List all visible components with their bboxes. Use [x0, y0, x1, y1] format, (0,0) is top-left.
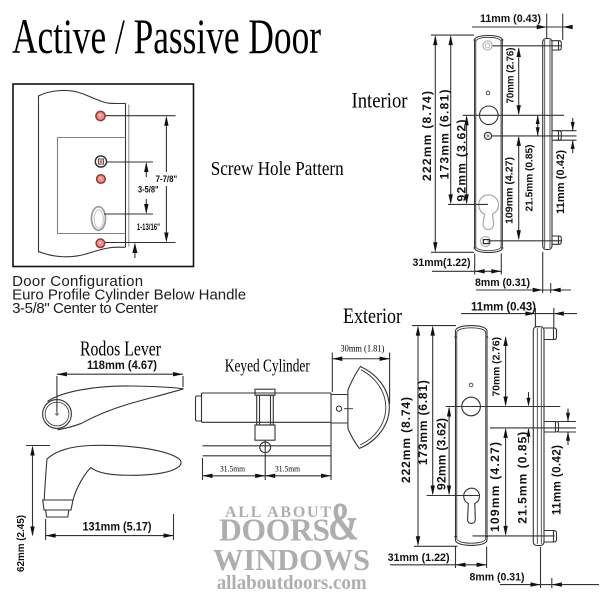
svg-text:31.5mm: 31.5mm — [275, 464, 300, 474]
svg-text:222mm (8.74): 222mm (8.74) — [420, 91, 434, 181]
svg-text:173mm (6.81): 173mm (6.81) — [416, 380, 430, 465]
svg-text:8mm (0.31): 8mm (0.31) — [470, 572, 525, 584]
svg-text:Exterior: Exterior — [343, 303, 403, 328]
svg-text:222mm (8.74): 222mm (8.74) — [399, 397, 413, 483]
svg-text:7-7/8": 7-7/8" — [156, 174, 178, 184]
svg-text:1-13/16": 1-13/16" — [137, 222, 160, 232]
svg-text:30mm (1.81): 30mm (1.81) — [340, 344, 384, 355]
svg-text:8mm (0.31): 8mm (0.31) — [475, 277, 530, 289]
svg-text:31.5mm: 31.5mm — [220, 464, 245, 474]
svg-text:Rodos Lever: Rodos Lever — [80, 336, 161, 360]
svg-text:109mm (4.27): 109mm (4.27) — [488, 442, 502, 532]
svg-text:3-5/8": 3-5/8" — [138, 185, 159, 195]
svg-text:21.5mm (0.85): 21.5mm (0.85) — [516, 432, 530, 524]
svg-text:92mm (3.62): 92mm (3.62) — [435, 418, 449, 490]
svg-text:3-5/8" Center to Center: 3-5/8" Center to Center — [12, 300, 158, 317]
svg-text:Active / Passive Door: Active / Passive Door — [12, 8, 321, 64]
svg-text:allaboutdoors.com: allaboutdoors.com — [217, 572, 367, 594]
svg-text:Interior: Interior — [352, 88, 409, 113]
svg-text:62mm (2.45): 62mm (2.45) — [15, 515, 27, 572]
svg-text:21.5mm (0.85): 21.5mm (0.85) — [523, 145, 535, 212]
svg-text:11mm (0.43): 11mm (0.43) — [471, 302, 536, 314]
svg-text:70mm (2.76): 70mm (2.76) — [491, 337, 503, 397]
svg-text:11mm (0.42): 11mm (0.42) — [551, 445, 563, 515]
svg-text:173mm (6.81): 173mm (6.81) — [437, 90, 451, 180]
svg-text:109mm (4.27): 109mm (4.27) — [504, 157, 516, 224]
svg-text:Keyed Cylinder: Keyed Cylinder — [225, 356, 310, 376]
svg-text:92mm (3.62): 92mm (3.62) — [454, 120, 468, 202]
svg-text:31mm (1.22): 31mm (1.22) — [388, 552, 450, 564]
svg-text:131mm (5.17): 131mm (5.17) — [83, 522, 152, 534]
svg-text:11mm (0.42): 11mm (0.42) — [555, 150, 567, 214]
svg-text:70mm (2.76): 70mm (2.76) — [505, 48, 516, 104]
svg-text:31mm(1.22): 31mm(1.22) — [413, 257, 471, 269]
svg-text:118mm (4.67): 118mm (4.67) — [87, 360, 157, 372]
svg-text:11mm (0.43): 11mm (0.43) — [480, 13, 541, 25]
svg-text:Screw Hole Pattern: Screw Hole Pattern — [211, 158, 344, 180]
